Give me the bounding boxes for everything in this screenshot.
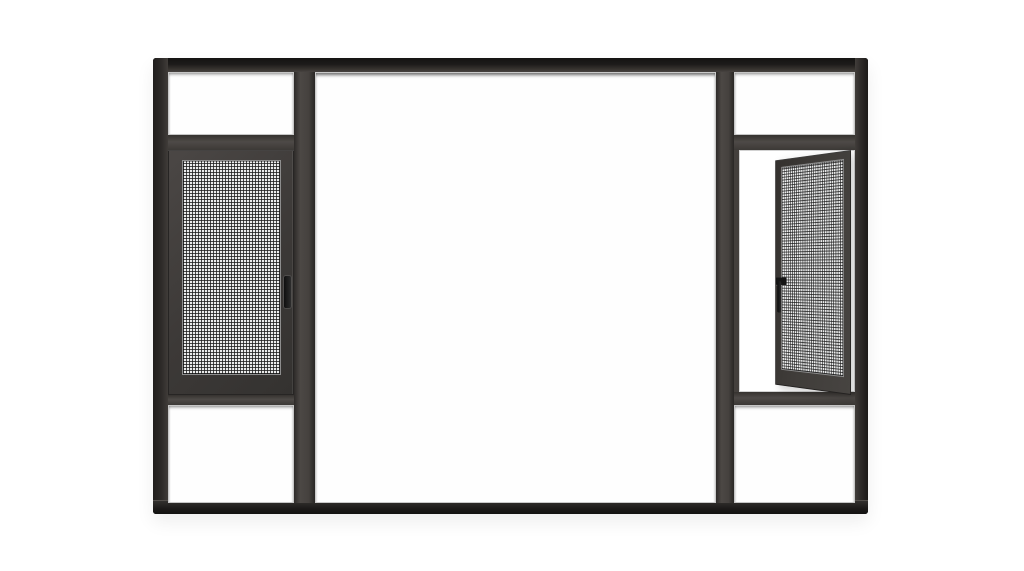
rail-right-transom bbox=[734, 135, 855, 150]
glass-bottom-left bbox=[168, 405, 294, 503]
mullion-left bbox=[294, 72, 315, 503]
rail-left-transom bbox=[168, 135, 294, 150]
frame-left-jamb bbox=[153, 58, 168, 514]
mesh-screen-left bbox=[182, 160, 281, 375]
screen-sash-closed bbox=[168, 150, 294, 395]
glass-bottom-right bbox=[734, 405, 855, 503]
window-frame bbox=[153, 58, 868, 514]
glass-center-pane bbox=[315, 72, 716, 503]
mullion-right bbox=[716, 72, 734, 503]
glass-transom-left bbox=[168, 72, 294, 135]
sash-handle-left bbox=[284, 276, 291, 308]
frame-right-jamb bbox=[855, 58, 868, 514]
rail-right-lower bbox=[734, 392, 855, 405]
frame-top-rail bbox=[153, 58, 868, 73]
product-photo-stage bbox=[0, 0, 1024, 571]
casement-opening bbox=[739, 150, 855, 392]
glass-transom-right bbox=[734, 72, 855, 135]
rail-left-lower bbox=[168, 395, 294, 405]
